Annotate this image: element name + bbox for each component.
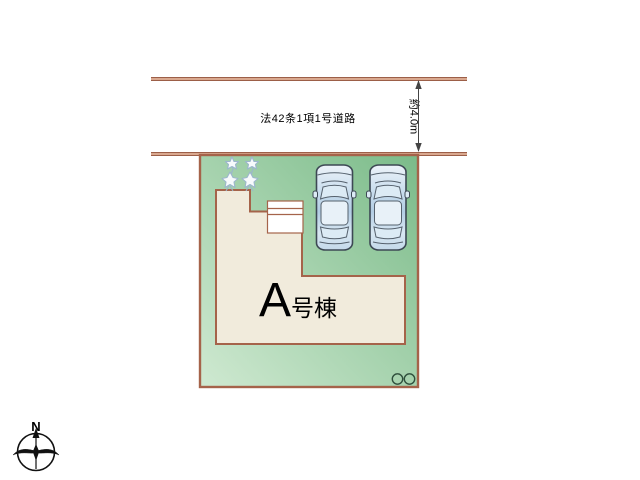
compass <box>13 428 59 471</box>
building-label-main: A <box>259 277 290 325</box>
building-label-suffix: 号棟 <box>291 297 337 320</box>
road-width-dimension-arrow <box>415 80 421 152</box>
car-icon <box>367 165 410 250</box>
car-icon <box>313 165 356 250</box>
entrance-porch <box>268 201 304 233</box>
site-plan-canvas: 法42条1項1号道路 約4.0m <box>0 0 640 480</box>
building-label: A 号棟 <box>259 277 337 325</box>
compass-wings <box>13 445 59 461</box>
compass-north-label: N <box>27 419 45 434</box>
site-plan-graphics <box>0 0 640 480</box>
